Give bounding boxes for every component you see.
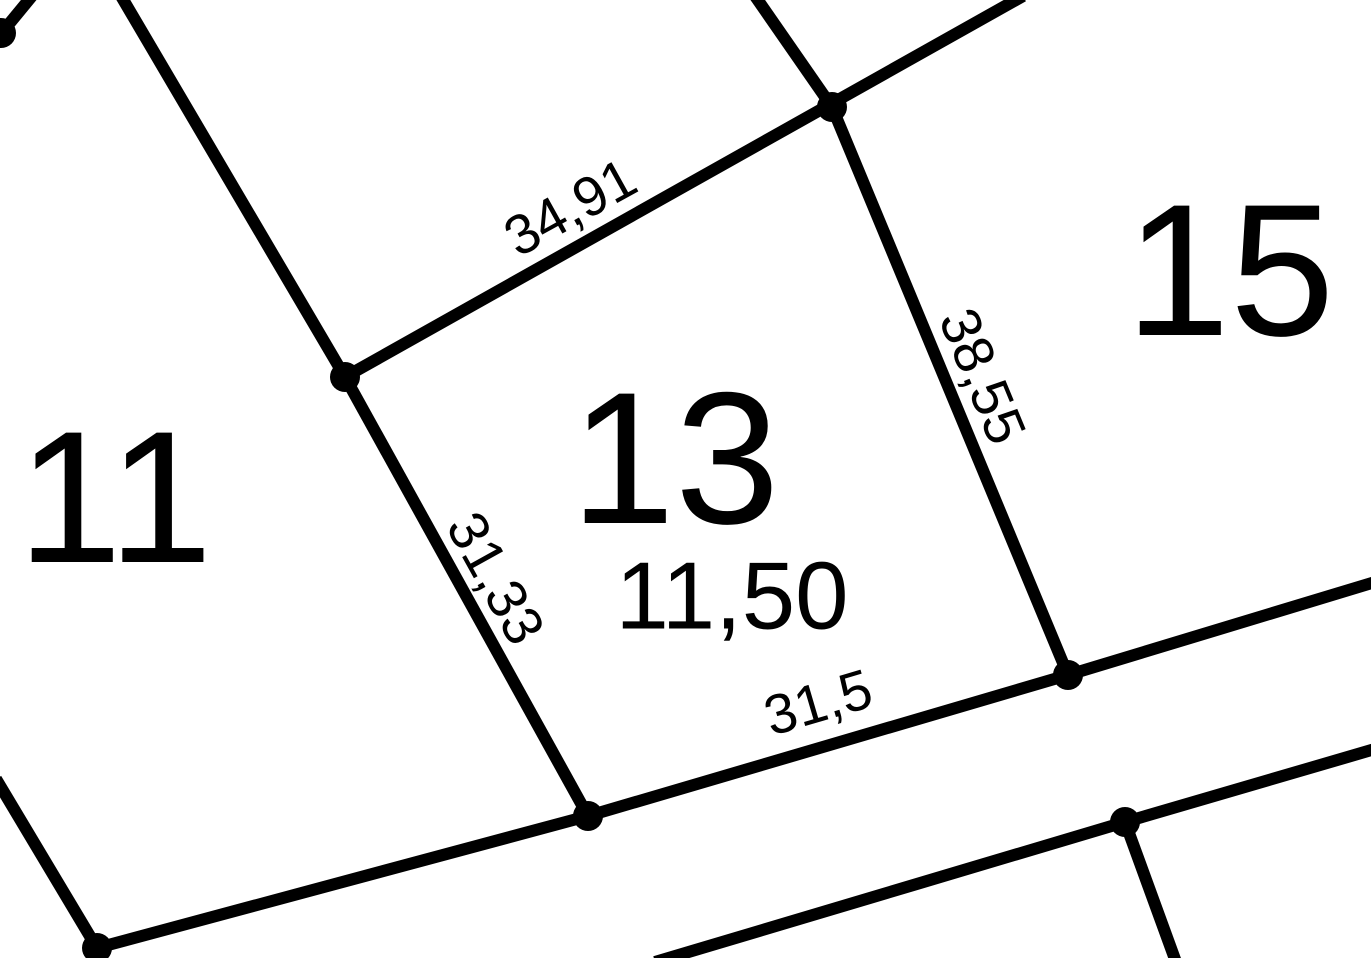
boundary-line-parcel13-west: [345, 377, 588, 816]
parcel-number-11: 11: [17, 392, 212, 602]
parcel-map-canvas: 11 13 11,50 15 34,91 38,55 31,33 31,5: [0, 0, 1371, 958]
boundary-line-south-parcel: [1125, 822, 1176, 958]
boundary-line-parcel11-north: [121, 0, 345, 377]
parcel-number-15: 15: [1125, 165, 1334, 375]
boundary-line-upper-parcels: [755, 0, 832, 107]
vertex-dot: [1053, 660, 1083, 690]
boundary-line-parcel13-east: [832, 107, 1068, 675]
vertex-dot: [1110, 807, 1140, 837]
vertex-dot: [573, 801, 603, 831]
road-edge-lower: [655, 749, 1371, 958]
vertex-dot: [817, 92, 847, 122]
boundary-line-parcel11-southwest: [0, 779, 97, 948]
vertex-dot: [330, 362, 360, 392]
parcel-number-13: 13: [570, 353, 779, 563]
parcel-area-13: 11,50: [615, 543, 848, 650]
cadastral-parcel-map: 11 13 11,50 15 34,91 38,55 31,33 31,5: [0, 0, 1371, 958]
parcel-labels: 11 13 11,50 15: [17, 165, 1334, 650]
